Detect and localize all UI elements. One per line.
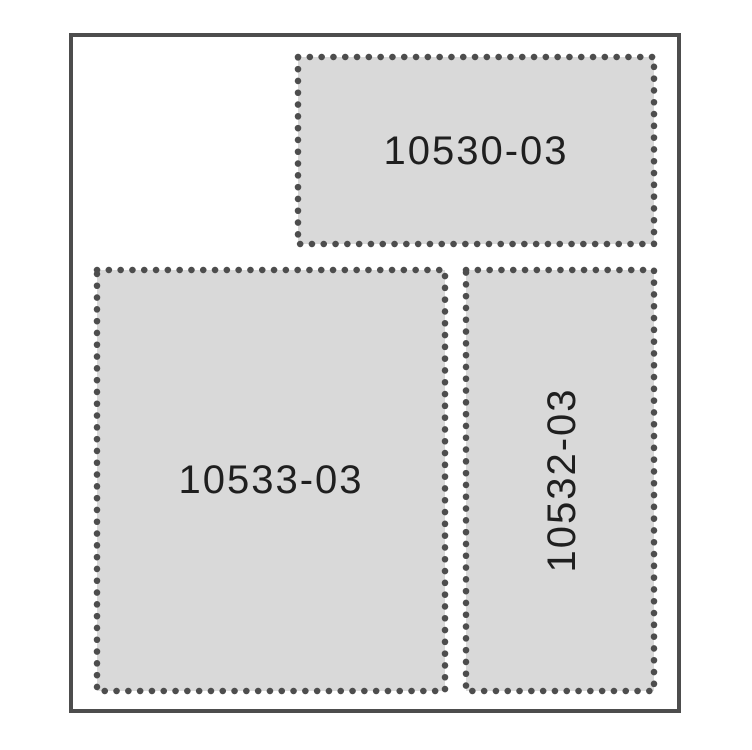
panel-bottom-left-label: 10533-03	[178, 458, 363, 502]
diagram-canvas: 10530-03 10533-03 10532-03	[0, 0, 752, 750]
panel-bottom-right-label: 10532-03	[540, 387, 584, 572]
panel-bottom-right: 10532-03	[466, 270, 654, 691]
panel-top-label: 10530-03	[383, 129, 568, 173]
panel-layout-diagram: 10530-03 10533-03 10532-03	[0, 0, 752, 750]
panel-top: 10530-03	[298, 57, 654, 244]
panel-bottom-left: 10533-03	[97, 270, 445, 691]
